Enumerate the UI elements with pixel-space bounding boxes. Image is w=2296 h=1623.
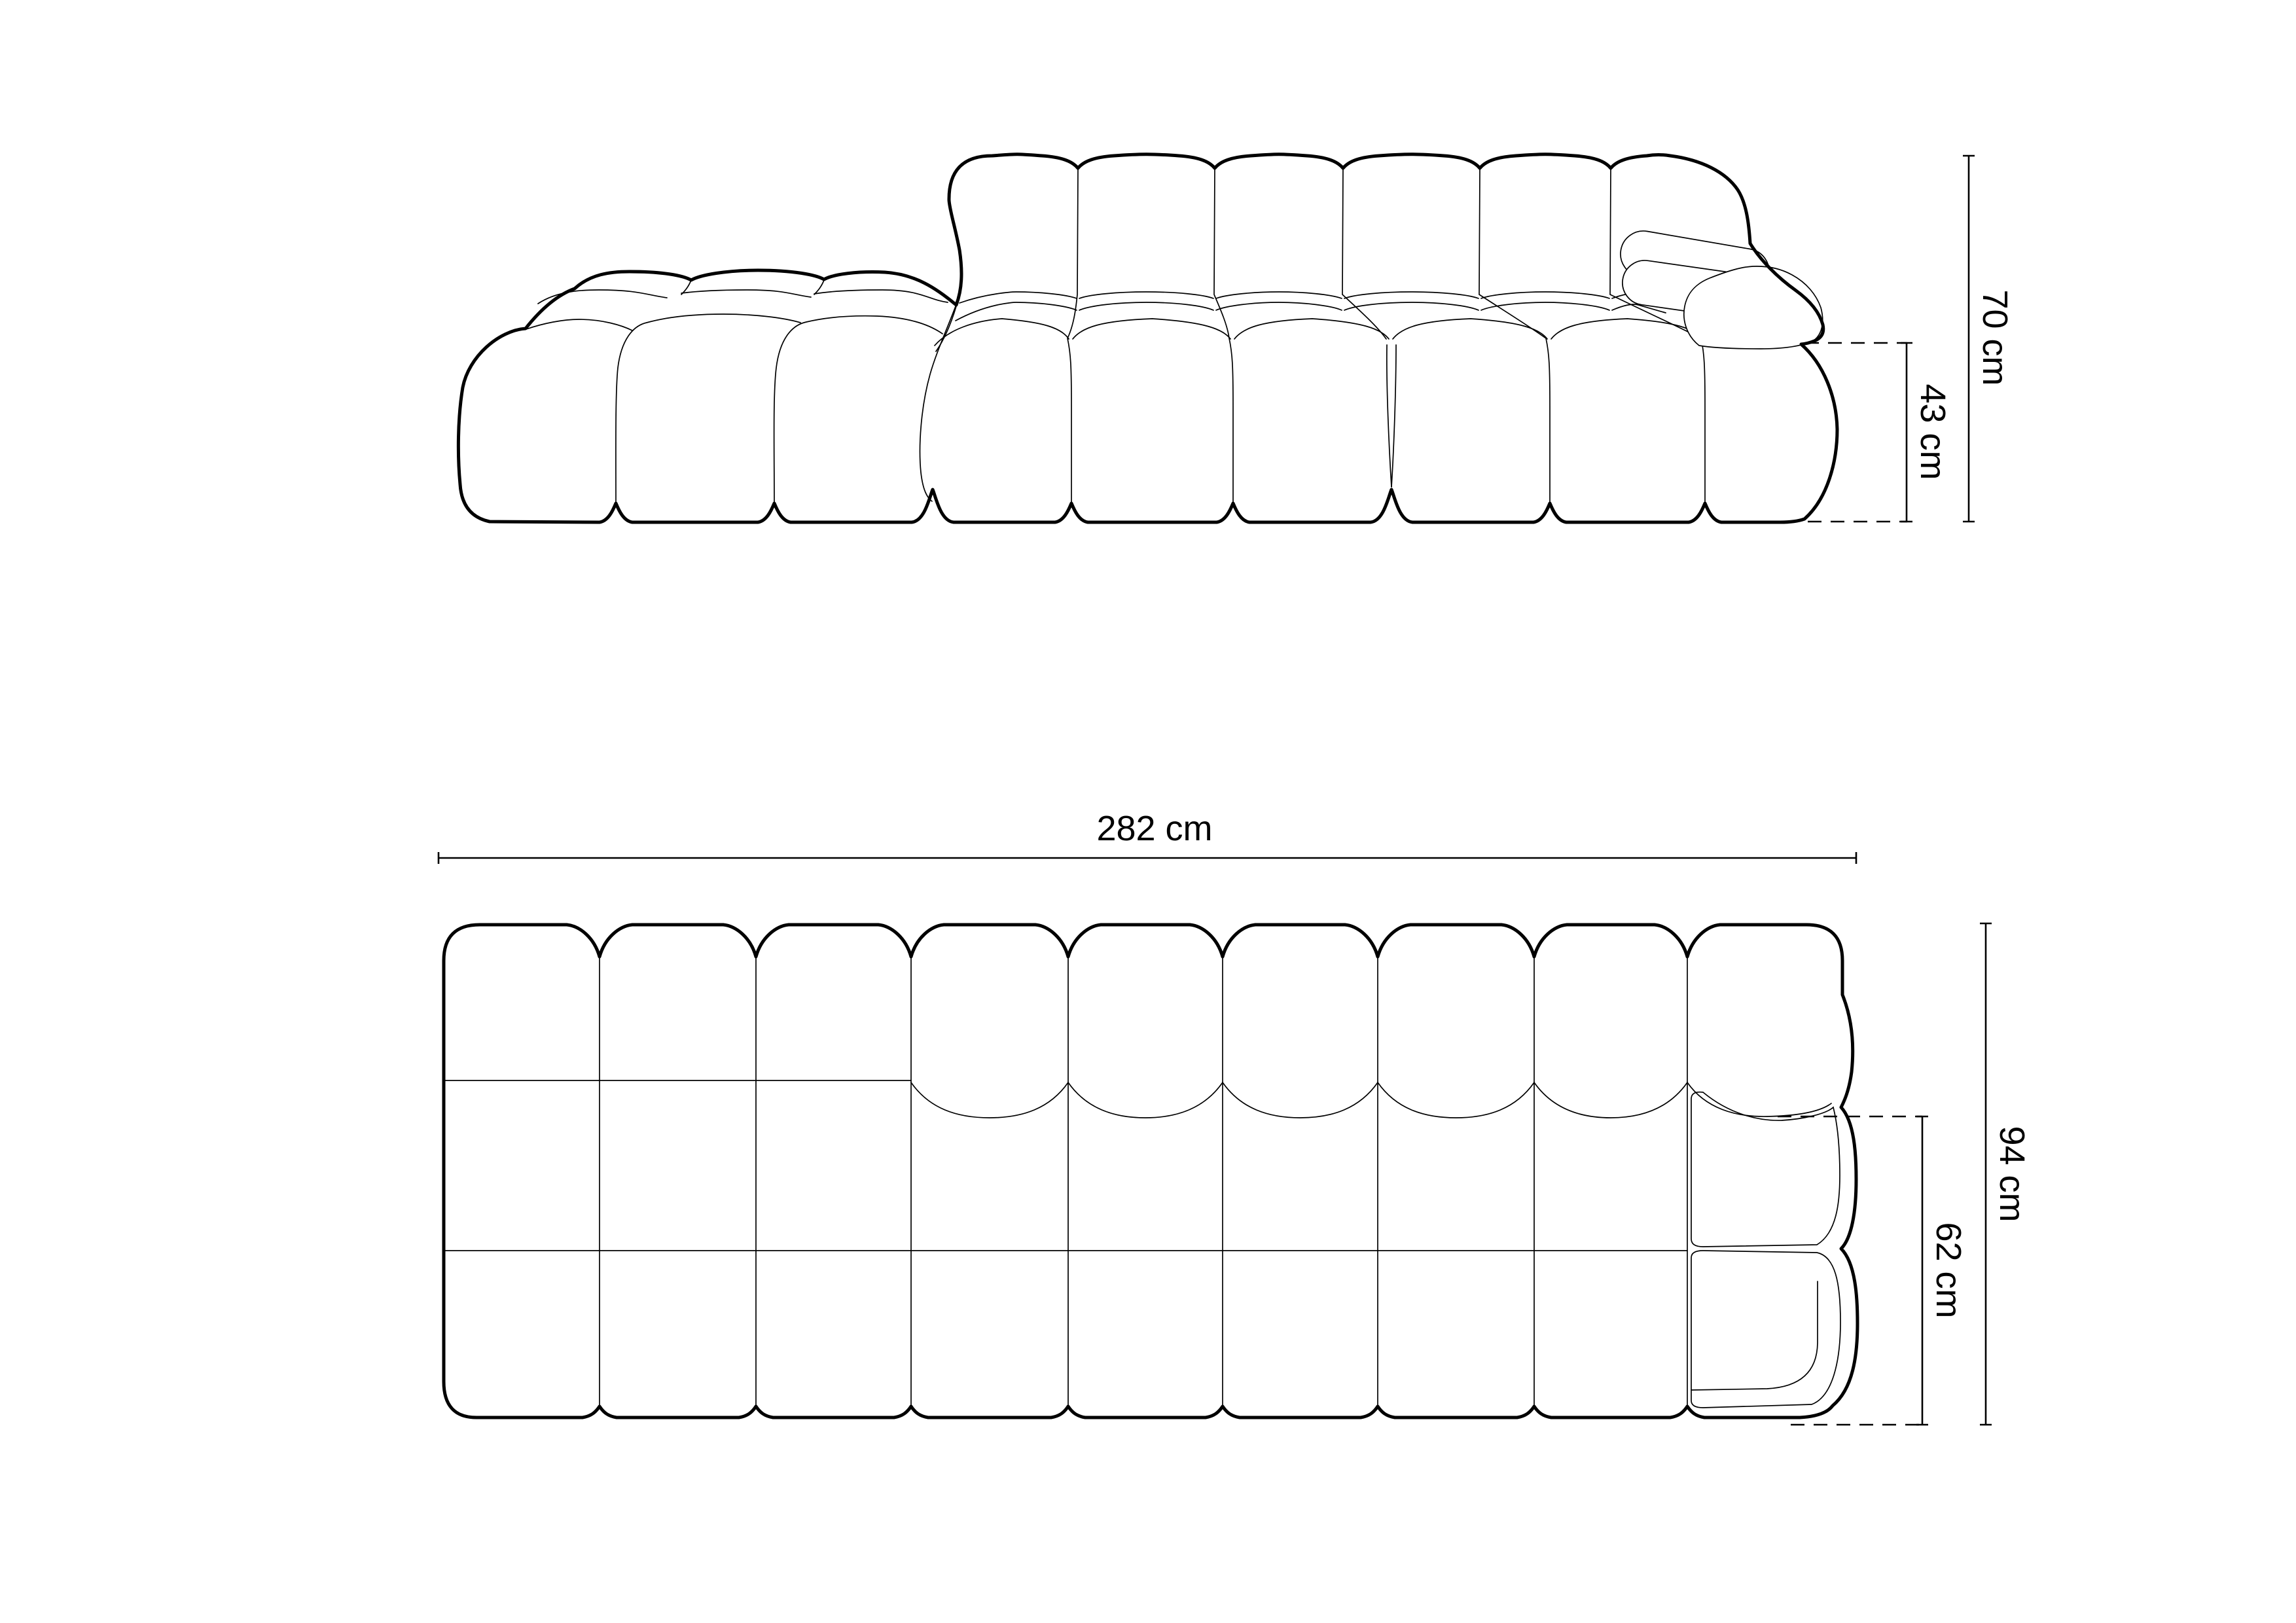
svg-text:70 cm: 70 cm <box>1975 289 2015 385</box>
svg-text:43 cm: 43 cm <box>1913 383 1952 480</box>
svg-text:62 cm: 62 cm <box>1929 1222 1968 1318</box>
svg-text:282 cm: 282 cm <box>1096 809 1212 848</box>
svg-text:94 cm: 94 cm <box>1992 1126 2032 1222</box>
